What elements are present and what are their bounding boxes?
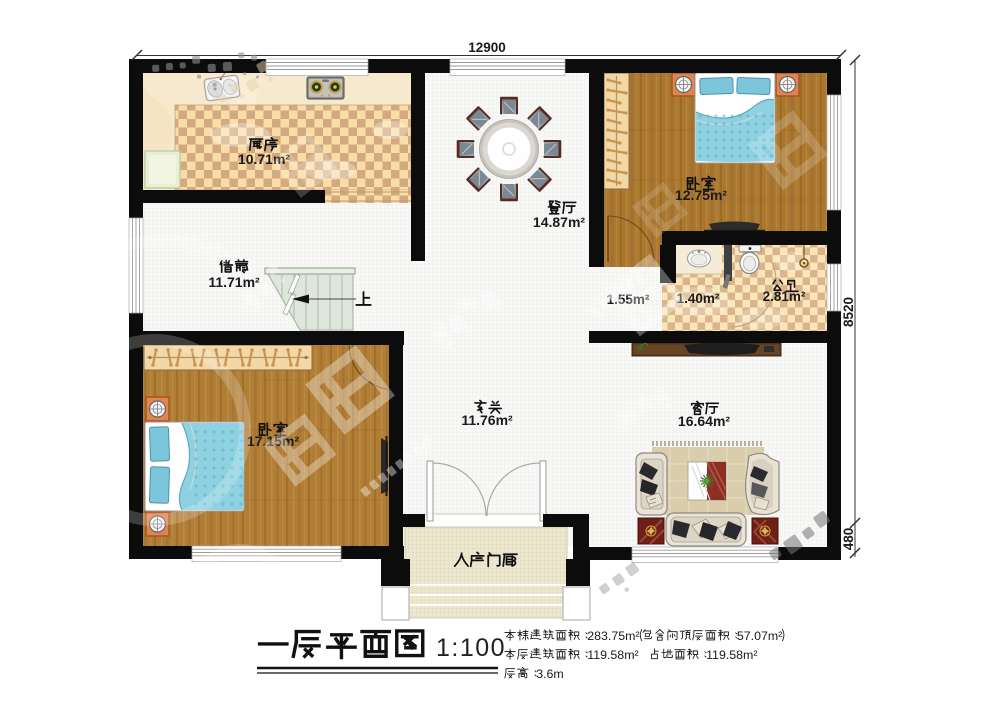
svg-text:14.87m²: 14.87m² xyxy=(533,214,585,230)
svg-text:12.75m²: 12.75m² xyxy=(675,187,727,203)
svg-text:11.76m²: 11.76m² xyxy=(461,412,513,428)
svg-text:8520: 8520 xyxy=(841,297,856,327)
svg-text:480: 480 xyxy=(841,528,856,551)
svg-text:16.64m²: 16.64m² xyxy=(678,413,730,429)
svg-text:1:100: 1:100 xyxy=(436,634,506,662)
svg-text:3.6m: 3.6m xyxy=(536,667,564,681)
svg-text:12900: 12900 xyxy=(468,40,506,55)
svg-text:2.81m²: 2.81m² xyxy=(763,289,806,304)
svg-text:11.71m²: 11.71m² xyxy=(208,274,260,290)
svg-text:119.58m²: 119.58m² xyxy=(587,648,638,662)
svg-text:119.58m²: 119.58m² xyxy=(706,648,757,662)
svg-text:57.07m²: 57.07m² xyxy=(737,629,782,643)
svg-text:283.75m²: 283.75m² xyxy=(587,629,639,643)
